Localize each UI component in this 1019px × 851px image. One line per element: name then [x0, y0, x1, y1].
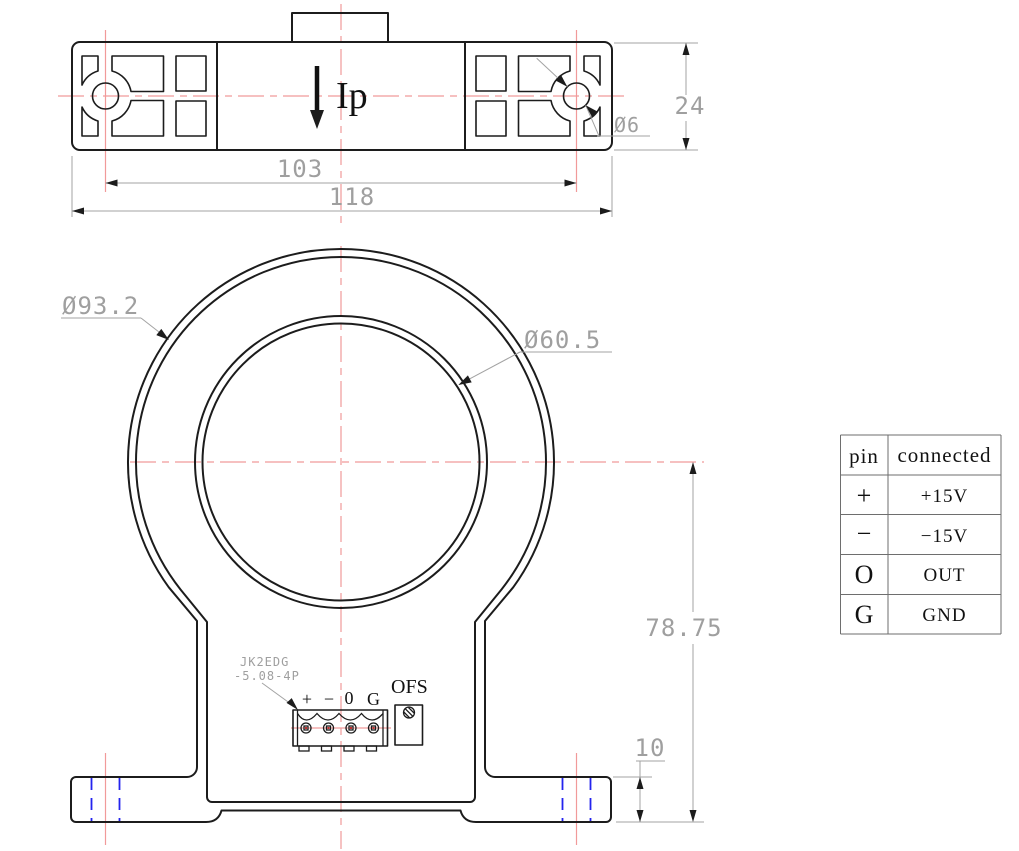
table-val-out: OUT	[923, 565, 965, 586]
ip-flow-arrow-icon	[310, 66, 324, 129]
connector-bump-outline	[292, 13, 388, 42]
pot-body	[395, 705, 423, 745]
drawing-canvas: Ip Ø6 24 103	[0, 0, 1019, 851]
pin-label-gnd: G	[367, 689, 380, 709]
dim-height-label: 24	[675, 92, 706, 120]
dim-outer-diameter-label: Ø93.2	[62, 292, 139, 320]
connector-ref-line2: -5.08-4P	[234, 669, 300, 683]
dim-center-to-bottom: 78.75	[616, 462, 723, 822]
pin-label-out: 0	[345, 688, 354, 708]
pin-label-minus: −	[324, 689, 334, 709]
table-pin-plus: +	[857, 481, 872, 510]
right-mount-block	[476, 56, 600, 136]
connector-scallops	[298, 714, 384, 721]
ip-label: Ip	[336, 75, 368, 117]
table-val-gnd: GND	[922, 605, 966, 626]
front-view: Ø93.2 Ø60.5 78.75 10	[61, 246, 723, 849]
table-val-plus15: +15V	[921, 486, 968, 507]
dim-foot-height-label: 10	[635, 734, 666, 762]
top-view: Ip Ø6 24 103	[58, 4, 705, 226]
connector-ref-line1: JK2EDG	[240, 655, 289, 669]
connector-reference: JK2EDG -5.08-4P	[234, 655, 300, 710]
table-pin-out: O	[855, 560, 874, 589]
dim-mount-hole: Ø6	[537, 58, 650, 137]
dim-center-to-bottom-label: 78.75	[645, 614, 722, 642]
table-header-pin: pin	[849, 444, 879, 468]
table-pin-minus: −	[857, 519, 872, 548]
dim-foot-height: 10	[613, 734, 665, 822]
table-val-minus15: −15V	[921, 526, 968, 547]
dim-mount-hole-label: Ø6	[614, 113, 640, 137]
pin-label-plus: +	[302, 689, 312, 709]
table-header-connected: connected	[897, 443, 991, 467]
technical-drawing: Ip Ø6 24 103	[0, 0, 1019, 851]
dim-overall-width-118: 118	[72, 156, 612, 217]
pin-table: pin connected + +15V − −15V O OUT G GND	[841, 435, 1002, 634]
left-mount-block	[82, 56, 206, 136]
ofs-potentiometer: OFS	[391, 676, 428, 745]
screw-icon	[404, 707, 415, 718]
dim-overall-width-label: 118	[329, 183, 375, 211]
table-pin-gnd: G	[855, 600, 874, 629]
dim-hole-spacing-label: 103	[277, 155, 323, 183]
dim-aperture-diameter-label: Ø60.5	[524, 326, 601, 354]
ofs-label: OFS	[391, 676, 428, 698]
dim-outer-diameter: Ø93.2	[61, 292, 169, 340]
